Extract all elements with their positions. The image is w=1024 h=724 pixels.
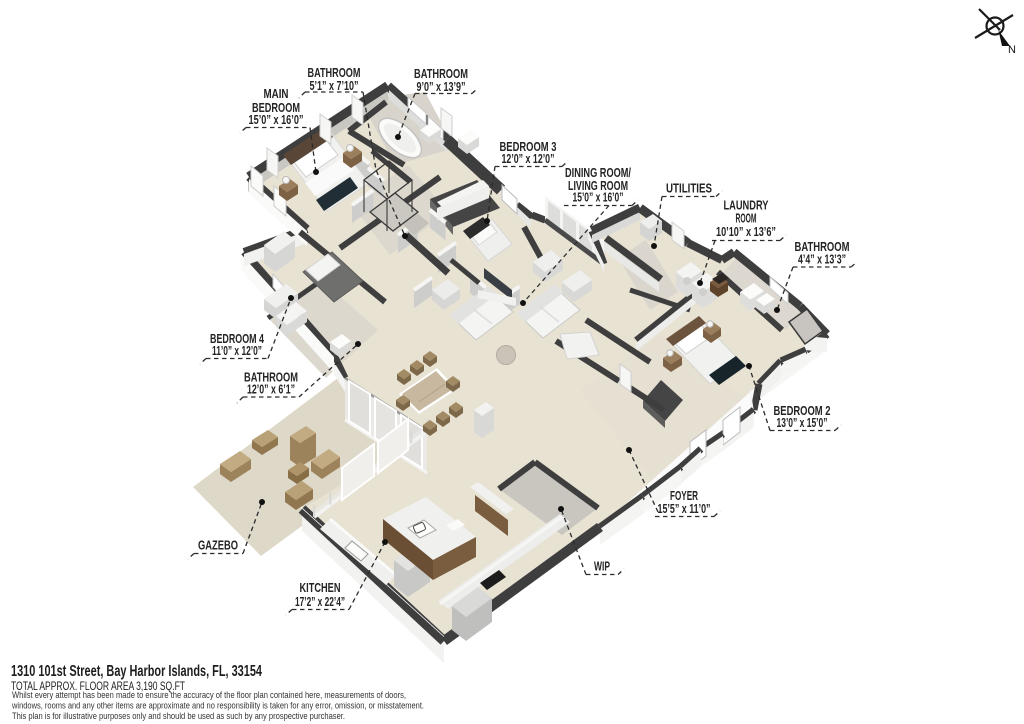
svg-text:12’0” x 6’1”: 12’0” x 6’1” (247, 382, 295, 397)
svg-text:10’10” x 13’6”: 10’10” x 13’6” (716, 224, 776, 239)
svg-text:N: N (1008, 44, 1016, 56)
svg-text:1310 101st Street, Bay Harbor: 1310 101st Street, Bay Harbor Islands, F… (11, 663, 262, 680)
svg-text:15’0” x 16’0”: 15’0” x 16’0” (573, 190, 624, 205)
svg-text:WIP: WIP (594, 559, 610, 574)
svg-text:GAZEBO: GAZEBO (198, 538, 238, 553)
svg-text:UTILITIES: UTILITIES (666, 181, 712, 196)
svg-text:15’5” x 11’0”: 15’5” x 11’0” (658, 501, 711, 516)
svg-text:MAIN: MAIN (264, 86, 289, 101)
svg-text:This plan is for illustrative: This plan is for illustrative purposes o… (12, 711, 345, 721)
svg-text:4’4” x 13’3”: 4’4” x 13’3” (798, 252, 846, 267)
svg-text:5’1” x 7’10”: 5’1” x 7’10” (310, 78, 359, 93)
svg-text:12’0” x 12’0”: 12’0” x 12’0” (502, 151, 555, 166)
svg-text:KITCHEN: KITCHEN (300, 580, 341, 595)
svg-text:11’0” x 12’0”: 11’0” x 12’0” (212, 343, 262, 358)
svg-text:13’0” x 15’0”: 13’0” x 15’0” (777, 415, 828, 430)
svg-text:15’0” x 16’0”: 15’0” x 16’0” (249, 112, 304, 127)
svg-text:Whilst every attempt has been: Whilst every attempt has been made to en… (12, 690, 406, 700)
svg-text:9’0” x 13’9”: 9’0” x 13’9” (417, 79, 466, 94)
svg-text:17’2” x 22’4”: 17’2” x 22’4” (295, 594, 345, 609)
svg-text:windows, rooms and any other i: windows, rooms and any other items are a… (11, 701, 424, 711)
